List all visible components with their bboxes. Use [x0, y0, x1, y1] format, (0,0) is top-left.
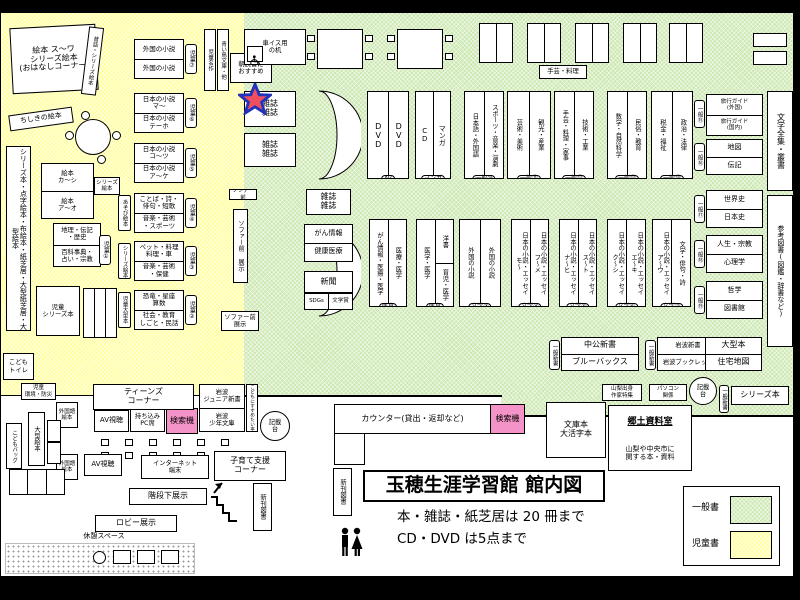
general-17-tag: 一般⑰: [694, 195, 705, 223]
shelf-literature-6-tag: 文学⑥: [615, 303, 638, 307]
study-table: [317, 29, 363, 69]
kids-environment-shelf: 児童 環境・防災: [21, 383, 56, 400]
shelf-unit: [575, 23, 609, 63]
page-title: 玉穂生涯学習館 館内図: [363, 470, 605, 502]
series-braille-cloth-books-wall: シリーズ本・点字絵本・布絵本・紙芝居・大型紙芝居・大型絵本: [6, 146, 31, 331]
writing-stand: 記載 台: [689, 377, 717, 405]
kids-badge-7: 児童⑦: [185, 44, 197, 74]
wheelchair-desk: 車イス用 の机: [244, 29, 306, 65]
legend-children-label: 児童書: [692, 539, 719, 549]
literature-collection-wall: 文学全集・叢書: [767, 91, 793, 191]
rest-space-label: 休憩スペース: [71, 531, 137, 543]
picture-books-shelf: 絵本 カ〜シ絵本 ア〜オ: [41, 163, 94, 219]
kids-badge-2: 児童②: [185, 295, 197, 325]
map-canvas: 絵本 ス〜ワ シリーズ絵本 (おはなしコーナー) 昔話・シリーズ絵本 ちしきの絵…: [0, 12, 794, 577]
kids-shelf-dinosaur-society: 恐竜・星座 算数社会・教育 しごと・民話: [134, 290, 184, 330]
map-biography-shelf: 地図伝記: [706, 139, 763, 175]
shelf-jp-novels-fu-mo: 日本の小説・エッセイ モ〜日本の小説・エッセイ フ〜メ 文学④: [511, 219, 549, 307]
history-shelf: 世界史日本史: [706, 190, 763, 228]
restroom-icon: [337, 525, 365, 567]
shelf-medicine-childcare: 医学・医学 洋書育児・医学 医育: [416, 219, 454, 307]
general-16-tag: 一般⑯: [694, 143, 705, 171]
shelf-foreign-novels: 外国の小説外国の小説 文学③: [459, 219, 501, 307]
newspaper-shelf: 新聞: [304, 271, 353, 293]
zone-border-line: [244, 395, 502, 397]
series-ehon-tag: シリーズ 絵本: [94, 177, 120, 195]
iwanami-junior-shelf: 岩波 ジュニア新書岩波 少年文庫: [199, 384, 245, 432]
kids-badge-1: 児童①: [99, 235, 111, 265]
shelf-jp-novels-e-shi: 日本の小説・エッセイ ク〜シ日本の小説・エッセイ エ〜キ 文学⑥: [607, 219, 646, 307]
recommended-for-kids-tag: こどもにすすめたい本: [246, 384, 258, 432]
round-table: [75, 119, 111, 155]
shelf-tax-politics: 税金・福祉政治・法律 一般⑭: [651, 91, 693, 179]
furniture-box: [47, 442, 61, 464]
internet-terminal: インターネット 端末: [141, 455, 209, 479]
series-ehon-side-tag: シリーズ絵本: [118, 243, 131, 279]
kids-badge-3: 児童③: [185, 246, 197, 276]
lending-rule-av: CD・DVD は5点まで: [397, 527, 647, 547]
shelf-math-education: 数学・自然科学民俗・教育 一般⑬: [607, 91, 647, 179]
kids-shelf-foreign-novels: 外国の小説外国の小説: [134, 39, 184, 79]
shelf-cancer-medical: がん情報・医療・医学医療・医学 医育: [369, 219, 407, 307]
chuko-shinsho-shelf: 中公新書ブルーバックス: [561, 337, 639, 371]
computer-books-shelf: パソコン 関係: [649, 384, 687, 401]
search-machine: 検索機: [166, 408, 198, 434]
av-viewing-seat: AV視聴: [94, 410, 129, 432]
kids-badge-5: 児童⑤: [185, 148, 197, 178]
yamanashi-authors-shelf: 山梨出身 作家特集: [602, 384, 642, 401]
lobby-display: ロビー展示: [95, 515, 177, 532]
general-shinsho-tag: 一般新書: [645, 340, 656, 370]
legend: 一般書 児童書: [683, 486, 780, 566]
chair: [112, 131, 121, 140]
shelf-unit: [623, 23, 657, 63]
new-books-shelf: 新刊図書: [253, 483, 272, 531]
general-19-tag: 一般⑲: [694, 286, 705, 314]
chair: [65, 131, 74, 140]
furniture-box: [113, 550, 131, 564]
shelf-general-12-tag: 一般⑫: [562, 175, 586, 179]
bench: [9, 469, 65, 495]
play-books-tag: あそび絵本: [118, 195, 131, 231]
chair: [81, 111, 90, 120]
large-books-shelf: 大型本住宅地図: [705, 337, 762, 371]
sofa-front-display-tag: ソファー前 展示: [221, 311, 259, 331]
new-books-shelf: 新刊図書: [333, 468, 352, 516]
furniture-box: [753, 51, 787, 65]
search-machine: 検索機: [490, 404, 525, 434]
shelf-unit: [83, 288, 117, 338]
furniture-box: [161, 550, 179, 564]
teens-corner: ティーンズ コーナー: [93, 384, 194, 410]
aoitori-bunko-tag: 青い鳥文庫・他: [217, 29, 229, 91]
shelf-general-10-tag: 一般⑩: [472, 175, 495, 179]
shelf-literature-3-tag: 文学③: [468, 303, 491, 307]
kids-bag-shelf: こどもバッグ: [6, 423, 22, 469]
kids-badge-6: 児童⑥: [185, 98, 197, 128]
furniture-box: [137, 550, 155, 564]
shelf-cd-manga-tag: マンガ: [421, 175, 445, 179]
sofa: [311, 89, 361, 181]
philosophy-shelf: 哲学図書館: [706, 281, 763, 319]
wheelchair-icon: [247, 46, 263, 62]
shelf-literature-4-tag: 文学④: [518, 303, 541, 307]
kids-reference-shelf: 地理・伝記 ・歴史百科事典・ 占い・宗教: [53, 223, 101, 267]
shelf-dvd-tag: AV: [381, 175, 395, 179]
general-18-tag: 一般⑱: [694, 240, 705, 268]
general-shinsho-tag: 一般新書: [719, 385, 729, 413]
religion-psychology-shelf: 人生・宗教心理学: [706, 235, 763, 273]
lending-rule-books: 本・雑誌・紙芝居は 20 冊まで: [397, 505, 647, 525]
shelf-medical-tag: 医育: [426, 303, 444, 307]
study-table: [397, 29, 443, 69]
kids-toilet: こども トイレ: [3, 353, 34, 380]
paperback-large-print-area: 文庫本 大活字本: [546, 402, 606, 458]
shelf-unit: [527, 23, 561, 63]
local-materials-room: 郷土資料室 山梨や中央市に 関する本・資料: [608, 405, 692, 471]
magazine-shelf: 雑誌 雑誌: [244, 133, 296, 167]
kids-shelf-jp-novels-ko: 日本の小説 コ〜ツ日本の小説 ア〜ケ: [134, 143, 184, 183]
handicraft-cooking-tag: 手芸・料理: [539, 65, 587, 79]
sdgs-literary-award-shelf: SDGs文学賞: [304, 293, 353, 310]
general-15-tag: 一般⑮: [694, 100, 705, 128]
general-shinsho-tag: 一般新書: [549, 340, 560, 370]
stairs-icon: [207, 477, 241, 525]
children-classics-tag: 児童名作: [204, 29, 216, 91]
magazine-shelf: 雑誌 雑誌: [306, 189, 351, 215]
shelf-general-13-tag: 一般⑬: [615, 175, 639, 179]
large-picture-books-shelf: 大型絵本: [28, 412, 45, 466]
reference-books-wall: 参考図書(図鑑・辞書など): [767, 195, 793, 347]
kids-shelf-pets-cooking: ペット・料理 料理・車音楽・芸術 ・保健: [134, 241, 184, 281]
library-floor-map: 絵本 ス〜ワ シリーズ絵本 (おはなしコーナー) 昔話・シリーズ絵本 ちしきの絵…: [0, 0, 800, 600]
counter-leg: [334, 432, 365, 465]
shelf-unit: [479, 23, 513, 63]
wheelchair-desk-label: 車イス用 の机: [263, 40, 288, 54]
sofa-front-tag: ソファー前: [229, 189, 257, 200]
cancer-info-health-shelf: がん情報健康医療: [304, 224, 353, 262]
av-viewing-seat: AV視聴: [84, 454, 122, 476]
counter: カウンター(貸出・返却など): [334, 404, 491, 434]
travel-guide-shelf: 旅行ガイド (外国)旅行ガイド (国内): [706, 94, 763, 136]
legend-general-label: 一般書: [692, 503, 719, 513]
furniture-box: [753, 33, 787, 47]
byod-pc-seat: 持ち込み PC席: [130, 408, 165, 432]
chair: [97, 155, 106, 164]
shelf-cd-manga: CDマンガ マンガ: [415, 91, 451, 179]
furniture-box: [47, 420, 61, 442]
you-are-here-star-icon: [238, 83, 272, 115]
shelf-craft-engineering: 手芸・料理・家事技術・工業 一般⑫: [554, 91, 594, 179]
shelf-art-tourism: 芸術・美術観光・産業 一般⑪: [507, 91, 551, 179]
shelf-general-14-tag: 一般⑭: [660, 175, 684, 179]
shelf-dvd: DVDDVD AV: [367, 91, 409, 179]
kids-shelf-poetry-music: ことば・詩・ 俳句・短歌音楽・芸術 ・スポーツ: [134, 193, 184, 233]
shelf-language-sports: 日本語・外国語スポーツ・音楽・演劇 一般⑩: [464, 91, 504, 179]
under-stairs-display: 階段下展示: [129, 488, 207, 505]
kids-series-books: 児童 シリーズ本: [36, 286, 80, 336]
furniture-round: [93, 551, 106, 564]
sofa-front-display: ソファー前 展示: [233, 209, 248, 283]
kids-large-books-tag: 児童大型本: [118, 292, 131, 328]
shelf-medical-tag: 医育: [379, 303, 397, 307]
shelf-literature-7-tag: 文学⑦: [660, 303, 683, 307]
legend-general-swatch: [730, 496, 772, 524]
series-books-shelf: シリーズ本: [731, 386, 789, 405]
kids-shelf-jp-novels-ma: 日本の小説 マ〜日本の小説 テーホ: [134, 93, 184, 133]
kids-badge-4: 児童④: [185, 198, 197, 228]
shelf-general-11-tag: 一般⑪: [517, 175, 541, 179]
legend-children-swatch: [730, 531, 772, 559]
shelf-jp-novels-a-u-poetry: 日本の小説・エッセイ ア〜ウ文学・俳句・詩 文学⑦: [652, 219, 691, 307]
shelf-jp-novels-su-hi: 日本の小説・エッセイ ナ〜ヒ日本の小説・エッセイ ス〜ト 文学⑤: [559, 219, 597, 307]
shelf-literature-5-tag: 文学⑤: [566, 303, 589, 307]
shelf-unit: [669, 23, 703, 63]
writing-stand: 記載 台: [260, 411, 290, 441]
